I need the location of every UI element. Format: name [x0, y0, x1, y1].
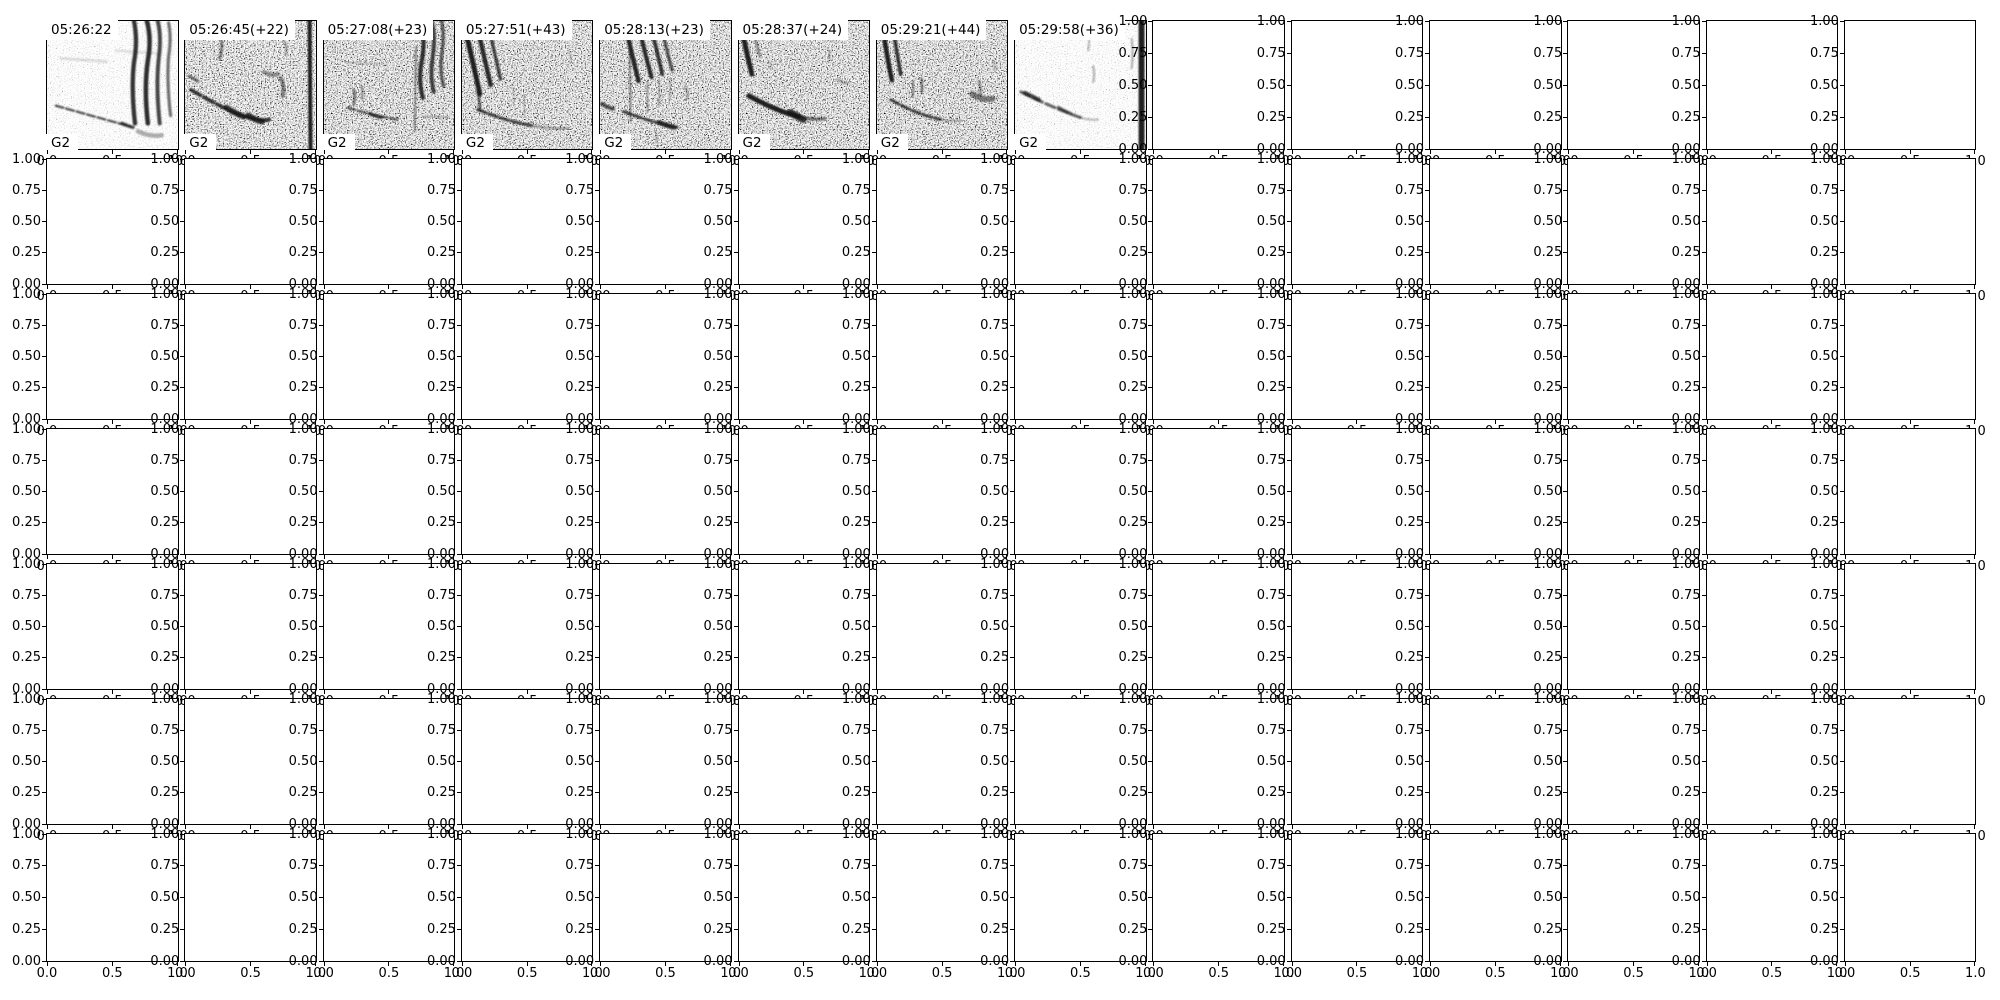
y-tick-mark	[319, 387, 323, 388]
y-tick-label: 0.25	[980, 786, 1009, 799]
y-tick-mark	[1702, 699, 1706, 700]
y-tick-mark	[1010, 252, 1014, 253]
y-tick-label: 1.00	[1395, 828, 1424, 841]
y-tick-label: 0.50	[1395, 485, 1424, 498]
y-tick-mark	[1010, 699, 1014, 700]
y-tick-label: 0.25	[1257, 516, 1286, 529]
y-tick-mark	[595, 460, 599, 461]
y-tick-mark	[180, 419, 184, 420]
y-tick-mark	[1148, 21, 1152, 22]
y-tick-label: 0.25	[565, 516, 594, 529]
y-tick-mark	[319, 730, 323, 731]
y-tick-mark	[734, 159, 738, 160]
y-tick-mark	[1148, 85, 1152, 86]
spectrogram-panel-1: 05:26:45(+22)G20.00.51.0	[184, 20, 317, 150]
y-tick-label: 1.00	[704, 558, 733, 571]
y-tick-mark	[595, 387, 599, 388]
y-tick-mark	[1563, 252, 1567, 253]
y-tick-label: 0.25	[1257, 381, 1286, 394]
y-tick-label: 0.25	[1672, 786, 1701, 799]
y-tick-mark	[1563, 159, 1567, 160]
y-tick-mark	[1010, 522, 1014, 523]
y-tick-label: 0.50	[1395, 350, 1424, 363]
y-tick-mark	[180, 595, 184, 596]
y-tick-label: 1.00	[704, 288, 733, 301]
y-tick-mark	[1010, 221, 1014, 222]
y-tick-mark	[319, 595, 323, 596]
noise-texture	[739, 21, 870, 149]
y-tick-label: 0.25	[1118, 381, 1147, 394]
y-tick-label: 1.00	[980, 693, 1009, 706]
y-tick-label: 0.25	[1118, 246, 1147, 259]
y-tick-label: 0.75	[1257, 47, 1286, 60]
y-tick-mark	[1148, 865, 1152, 866]
y-tick-mark	[1287, 699, 1291, 700]
y-tick-mark	[872, 491, 876, 492]
y-tick-mark	[1148, 897, 1152, 898]
y-tick-mark	[872, 284, 876, 285]
y-tick-mark	[1840, 834, 1844, 835]
y-tick-mark	[1563, 824, 1567, 825]
y-tick-label: 0.25	[1533, 786, 1562, 799]
y-tick-mark	[319, 294, 323, 295]
y-tick-label: 0.50	[1810, 620, 1839, 633]
y-tick-label: 1.00	[704, 693, 733, 706]
y-tick-label: 1.00	[1672, 153, 1701, 166]
y-tick-label: 0.75	[565, 724, 594, 737]
y-tick-mark	[734, 761, 738, 762]
y-tick-label: 0.75	[289, 184, 318, 197]
y-tick-label: 0.25	[289, 516, 318, 529]
y-tick-label: 1.00	[1672, 288, 1701, 301]
y-tick-mark	[42, 834, 46, 835]
y-tick-mark	[180, 834, 184, 835]
y-tick-mark	[42, 429, 46, 430]
y-tick-mark	[1287, 961, 1291, 962]
y-tick-mark	[42, 522, 46, 523]
y-tick-mark	[1148, 657, 1152, 658]
y-tick-mark	[1425, 117, 1429, 118]
y-tick-label: 0.50	[12, 755, 41, 768]
y-tick-label: 0.50	[427, 215, 456, 228]
y-tick-mark	[1148, 149, 1152, 150]
y-tick-mark	[1840, 865, 1844, 866]
y-tick-label: 0.25	[1810, 786, 1839, 799]
y-tick-mark	[1287, 429, 1291, 430]
y-tick-mark	[1010, 159, 1014, 160]
y-tick-mark	[1287, 149, 1291, 150]
y-tick-mark	[319, 325, 323, 326]
y-tick-label: 0.75	[1257, 454, 1286, 467]
y-tick-mark	[734, 419, 738, 420]
y-tick-mark	[180, 429, 184, 430]
y-tick-mark	[1840, 689, 1844, 690]
y-tick-mark	[1425, 626, 1429, 627]
y-tick-label: 1.00	[1533, 288, 1562, 301]
y-tick-mark	[319, 834, 323, 835]
y-tick-mark	[734, 730, 738, 731]
y-tick-mark	[1840, 897, 1844, 898]
y-tick-mark	[180, 190, 184, 191]
y-tick-mark	[595, 284, 599, 285]
spectrogram-image	[462, 21, 593, 149]
y-tick-label: 0.50	[289, 891, 318, 904]
y-tick-label: 0.25	[1533, 246, 1562, 259]
y-tick-label: 0.25	[1810, 923, 1839, 936]
y-tick-mark	[1563, 595, 1567, 596]
y-tick-label: 1.00	[1257, 423, 1286, 436]
y-tick-mark	[1702, 419, 1706, 420]
y-tick-label: 1.00	[842, 288, 871, 301]
y-tick-mark	[180, 961, 184, 962]
y-tick-label: 0.50	[1257, 755, 1286, 768]
y-tick-mark	[42, 595, 46, 596]
y-tick-mark	[319, 897, 323, 898]
y-tick-mark	[872, 221, 876, 222]
y-tick-label: 0.75	[1257, 724, 1286, 737]
y-tick-mark	[1840, 221, 1844, 222]
y-tick-mark	[1563, 419, 1567, 420]
y-tick-mark	[734, 356, 738, 357]
y-tick-mark	[319, 190, 323, 191]
y-tick-mark	[1148, 117, 1152, 118]
y-tick-label: 0.75	[704, 184, 733, 197]
y-tick-label: 1.00	[565, 288, 594, 301]
y-tick-mark	[1563, 117, 1567, 118]
y-tick-label: 0.50	[980, 485, 1009, 498]
timestamp-label: 05:27:51(+43)	[461, 20, 572, 40]
subplot-r1-c13: 1.000.750.500.250.000.00.51.0	[1844, 158, 1977, 285]
x-tick-label: 0.0	[37, 967, 58, 980]
y-tick-label: 0.75	[1533, 47, 1562, 60]
subplot-r2-c13: 1.000.750.500.250.000.00.51.0	[1844, 293, 1977, 420]
y-tick-mark	[1287, 419, 1291, 420]
y-tick-label: 0.50	[1672, 215, 1701, 228]
y-tick-mark	[1563, 929, 1567, 930]
y-tick-mark	[1563, 387, 1567, 388]
y-tick-label: 1.00	[1672, 828, 1701, 841]
y-tick-label: 1.00	[1118, 288, 1147, 301]
y-tick-label: 0.50	[704, 620, 733, 633]
y-tick-mark	[180, 325, 184, 326]
y-tick-label: 0.25	[565, 246, 594, 259]
y-tick-mark	[1702, 429, 1706, 430]
y-tick-mark	[1563, 85, 1567, 86]
y-tick-label: 0.50	[1810, 755, 1839, 768]
y-tick-mark	[1702, 190, 1706, 191]
y-tick-label: 0.50	[1118, 79, 1147, 92]
y-tick-label: 0.25	[150, 786, 179, 799]
y-tick-label: 0.25	[1395, 516, 1424, 529]
y-tick-mark	[1010, 824, 1014, 825]
y-tick-mark	[42, 491, 46, 492]
y-tick-label: 0.50	[1533, 79, 1562, 92]
spectrogram-panel-2: 05:27:08(+23)G20.00.51.0	[323, 20, 456, 150]
y-tick-mark	[1148, 564, 1152, 565]
y-tick-label: 0.25	[289, 923, 318, 936]
y-tick-label: 0.50	[150, 350, 179, 363]
y-tick-mark	[872, 689, 876, 690]
y-tick-label: 0.75	[289, 859, 318, 872]
y-tick-label: 1.00	[980, 288, 1009, 301]
y-tick-mark	[1702, 159, 1706, 160]
y-tick-label: 0.75	[1672, 47, 1701, 60]
y-tick-mark	[1287, 626, 1291, 627]
y-tick-mark	[1563, 792, 1567, 793]
y-tick-label: 0.25	[980, 516, 1009, 529]
y-tick-mark	[1840, 626, 1844, 627]
y-tick-label: 0.25	[704, 923, 733, 936]
y-tick-mark	[1425, 792, 1429, 793]
y-tick-mark	[180, 897, 184, 898]
y-tick-mark	[1840, 387, 1844, 388]
y-tick-label: 0.50	[12, 215, 41, 228]
y-tick-mark	[1287, 53, 1291, 54]
y-tick-mark	[734, 929, 738, 930]
y-tick-label: 0.50	[1118, 620, 1147, 633]
y-tick-label: 0.75	[1533, 859, 1562, 872]
y-tick-label: 0.75	[980, 319, 1009, 332]
y-tick-label: 0.50	[150, 620, 179, 633]
y-tick-label: 1.00	[565, 153, 594, 166]
y-tick-label: 0.75	[1672, 184, 1701, 197]
y-tick-mark	[1563, 564, 1567, 565]
y-tick-mark	[457, 325, 461, 326]
y-tick-mark	[1425, 221, 1429, 222]
y-tick-mark	[42, 252, 46, 253]
spectrogram-panel-6: 05:29:21(+44)G20.00.51.0	[876, 20, 1009, 150]
y-tick-mark	[180, 626, 184, 627]
y-tick-label: 1.00	[1672, 558, 1701, 571]
y-tick-mark	[1010, 294, 1014, 295]
y-tick-label: 0.75	[980, 184, 1009, 197]
y-tick-label: 0.50	[842, 350, 871, 363]
y-tick-mark	[872, 929, 876, 930]
y-tick-label: 1.00	[565, 558, 594, 571]
y-tick-mark	[1287, 325, 1291, 326]
y-tick-label: 1.00	[1810, 693, 1839, 706]
y-tick-label: 0.75	[12, 724, 41, 737]
y-tick-label: 0.25	[565, 923, 594, 936]
y-tick-label: 0.75	[1810, 454, 1839, 467]
y-tick-label: 0.75	[565, 454, 594, 467]
spectrogram-image	[47, 21, 178, 149]
y-tick-mark	[1425, 824, 1429, 825]
y-tick-mark	[180, 689, 184, 690]
y-tick-label: 0.50	[1533, 485, 1562, 498]
spectrogram-image	[185, 21, 316, 149]
y-tick-mark	[1840, 356, 1844, 357]
y-tick-label: 0.50	[289, 620, 318, 633]
y-tick-label: 0.75	[704, 589, 733, 602]
y-tick-label: 0.50	[1118, 215, 1147, 228]
y-tick-mark	[1702, 564, 1706, 565]
y-tick-label: 0.50	[842, 485, 871, 498]
y-tick-mark	[1563, 356, 1567, 357]
y-tick-label: 0.50	[1395, 891, 1424, 904]
y-tick-mark	[1148, 429, 1152, 430]
y-tick-label: 0.50	[1118, 891, 1147, 904]
y-tick-label: 1.00	[12, 423, 41, 436]
y-tick-label: 0.25	[704, 381, 733, 394]
y-tick-mark	[1840, 491, 1844, 492]
y-tick-mark	[319, 356, 323, 357]
y-tick-mark	[595, 626, 599, 627]
y-tick-mark	[42, 325, 46, 326]
noise-texture	[185, 21, 316, 149]
y-tick-label: 0.50	[150, 755, 179, 768]
y-tick-mark	[180, 221, 184, 222]
y-tick-mark	[319, 657, 323, 658]
y-tick-mark	[1148, 522, 1152, 523]
y-tick-mark	[872, 595, 876, 596]
y-tick-mark	[1563, 522, 1567, 523]
y-tick-mark	[595, 190, 599, 191]
y-tick-label: 0.75	[427, 454, 456, 467]
y-tick-mark	[1287, 897, 1291, 898]
y-tick-mark	[1702, 657, 1706, 658]
y-tick-mark	[1010, 657, 1014, 658]
y-tick-mark	[734, 689, 738, 690]
y-tick-mark	[1287, 356, 1291, 357]
y-tick-mark	[1840, 85, 1844, 86]
y-tick-mark	[457, 834, 461, 835]
y-tick-mark	[1702, 897, 1706, 898]
y-tick-label: 1.00	[289, 558, 318, 571]
timestamp-label: 05:28:13(+23)	[599, 20, 710, 40]
y-tick-mark	[1010, 419, 1014, 420]
y-tick-label: 1.00	[427, 153, 456, 166]
y-tick-mark	[1563, 689, 1567, 690]
y-tick-mark	[1148, 689, 1152, 690]
y-tick-mark	[1010, 325, 1014, 326]
y-tick-mark	[319, 626, 323, 627]
y-tick-label: 1.00	[1118, 828, 1147, 841]
y-tick-label: 0.25	[1672, 923, 1701, 936]
y-tick-label: 0.25	[427, 923, 456, 936]
spectrogram-panel-3: 05:27:51(+43)G20.00.51.0	[461, 20, 594, 150]
y-tick-label: 1.00	[565, 828, 594, 841]
y-tick-label: 0.50	[565, 620, 594, 633]
y-tick-label: 0.25	[150, 651, 179, 664]
x-tick-label: 0.5	[379, 967, 400, 980]
y-tick-mark	[180, 699, 184, 700]
timestamp-label: 05:28:37(+24)	[738, 20, 849, 40]
y-tick-label: 0.50	[1533, 350, 1562, 363]
y-tick-label: 0.75	[704, 319, 733, 332]
y-tick-mark	[319, 564, 323, 565]
y-tick-label: 0.75	[12, 454, 41, 467]
y-tick-label: 1.00	[1810, 423, 1839, 436]
y-tick-mark	[1702, 85, 1706, 86]
y-tick-label: 0.50	[1257, 620, 1286, 633]
y-tick-label: 1.00	[842, 558, 871, 571]
y-tick-label: 1.00	[12, 558, 41, 571]
y-tick-label: 0.50	[1810, 79, 1839, 92]
y-tick-label: 0.50	[1672, 79, 1701, 92]
subplot-r4-c13: 1.000.750.500.250.000.00.51.0	[1844, 563, 1977, 690]
y-tick-mark	[1702, 387, 1706, 388]
y-tick-label: 0.25	[1257, 786, 1286, 799]
y-tick-label: 0.75	[427, 589, 456, 602]
y-tick-label: 0.25	[1672, 651, 1701, 664]
y-tick-mark	[1840, 149, 1844, 150]
y-tick-mark	[1702, 294, 1706, 295]
timestamp-label: 05:29:58(+36)	[1014, 20, 1125, 40]
y-tick-mark	[872, 419, 876, 420]
y-tick-mark	[457, 221, 461, 222]
y-tick-mark	[1702, 284, 1706, 285]
y-tick-mark	[1840, 419, 1844, 420]
y-tick-mark	[1010, 387, 1014, 388]
y-tick-label: 1.00	[1672, 15, 1701, 28]
y-tick-mark	[734, 284, 738, 285]
y-tick-mark	[319, 159, 323, 160]
y-tick-label: 0.25	[1533, 381, 1562, 394]
y-tick-mark	[1287, 929, 1291, 930]
y-tick-mark	[1702, 252, 1706, 253]
y-tick-mark	[180, 554, 184, 555]
y-tick-label: 1.00	[1395, 558, 1424, 571]
y-tick-label: 0.75	[1118, 47, 1147, 60]
y-tick-mark	[1563, 834, 1567, 835]
y-tick-mark	[1563, 961, 1567, 962]
y-tick-mark	[457, 699, 461, 700]
y-tick-mark	[734, 325, 738, 326]
y-tick-mark	[1148, 595, 1152, 596]
y-tick-label: 0.25	[842, 381, 871, 394]
y-tick-mark	[734, 190, 738, 191]
y-tick-mark	[42, 961, 46, 962]
y-tick-mark	[595, 491, 599, 492]
y-tick-label: 1.00	[12, 828, 41, 841]
y-tick-label: 0.75	[427, 184, 456, 197]
y-tick-mark	[1563, 865, 1567, 866]
y-tick-label: 1.00	[427, 288, 456, 301]
y-tick-label: 0.25	[1257, 651, 1286, 664]
y-tick-mark	[180, 491, 184, 492]
y-tick-mark	[457, 929, 461, 930]
y-tick-label: 0.50	[1395, 755, 1424, 768]
group-label: G2	[876, 134, 908, 153]
y-tick-mark	[595, 792, 599, 793]
y-tick-label: 1.00	[289, 828, 318, 841]
y-tick-label: 0.50	[1257, 79, 1286, 92]
y-tick-label: 0.75	[1672, 454, 1701, 467]
y-tick-mark	[1287, 387, 1291, 388]
y-tick-mark	[734, 564, 738, 565]
y-tick-mark	[1563, 429, 1567, 430]
y-tick-mark	[1010, 929, 1014, 930]
y-tick-label: 1.00	[1533, 693, 1562, 706]
y-tick-mark	[1287, 294, 1291, 295]
y-tick-label: 1.00	[1118, 558, 1147, 571]
y-tick-mark	[734, 699, 738, 700]
y-tick-label: 1.00	[12, 153, 41, 166]
y-tick-mark	[42, 284, 46, 285]
x-tick-label: 0.5	[1485, 967, 1506, 980]
y-tick-mark	[1840, 961, 1844, 962]
y-tick-label: 0.25	[427, 786, 456, 799]
y-tick-label: 0.50	[1810, 215, 1839, 228]
y-tick-mark	[872, 834, 876, 835]
y-tick-label: 0.25	[150, 381, 179, 394]
y-tick-mark	[1148, 387, 1152, 388]
y-tick-mark	[42, 294, 46, 295]
y-tick-mark	[1148, 824, 1152, 825]
y-tick-mark	[734, 626, 738, 627]
y-tick-mark	[1425, 284, 1429, 285]
